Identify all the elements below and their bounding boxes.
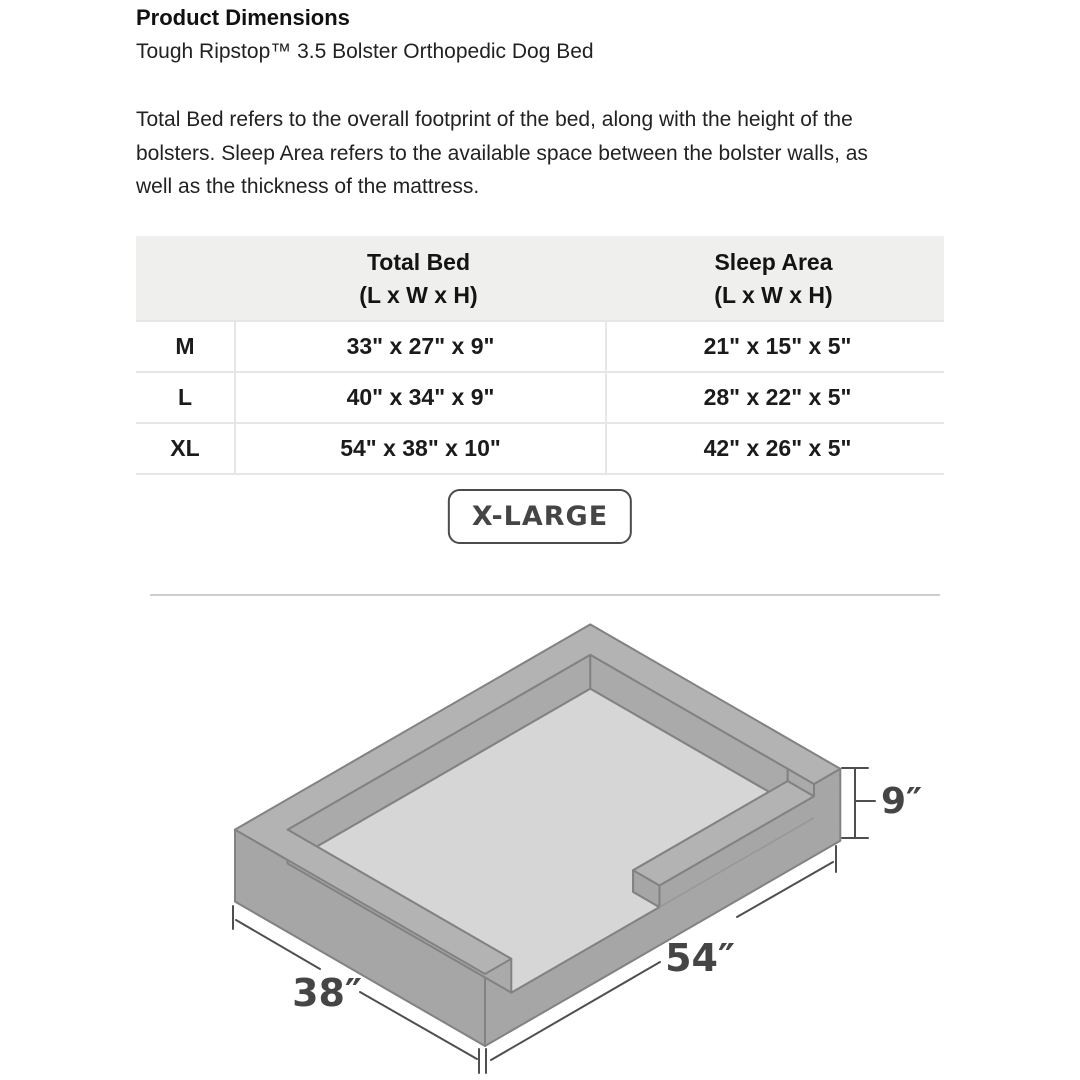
length-dim-label: 54″: [665, 936, 735, 980]
width-dim-label: 38″: [292, 971, 362, 1015]
bed-diagram: 9″ 54″ 38″: [0, 0, 1080, 1080]
height-dim-label: 9″: [881, 781, 922, 822]
height-dimension: 9″: [842, 768, 922, 838]
